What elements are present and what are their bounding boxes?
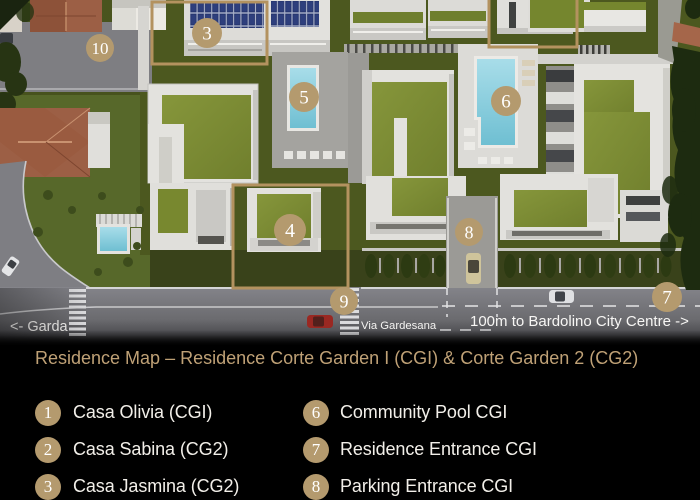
svg-text:7: 7	[662, 288, 672, 309]
svg-text:9: 9	[340, 292, 349, 312]
svg-text:8: 8	[465, 223, 474, 243]
svg-text:6: 6	[501, 92, 511, 113]
svg-text:4: 4	[285, 220, 295, 242]
svg-text:3: 3	[202, 24, 212, 45]
svg-text:10: 10	[92, 39, 109, 58]
svg-text:5: 5	[299, 88, 309, 109]
svg-text:100m to Bardolino City Centre: 100m to Bardolino City Centre ->	[470, 313, 689, 330]
